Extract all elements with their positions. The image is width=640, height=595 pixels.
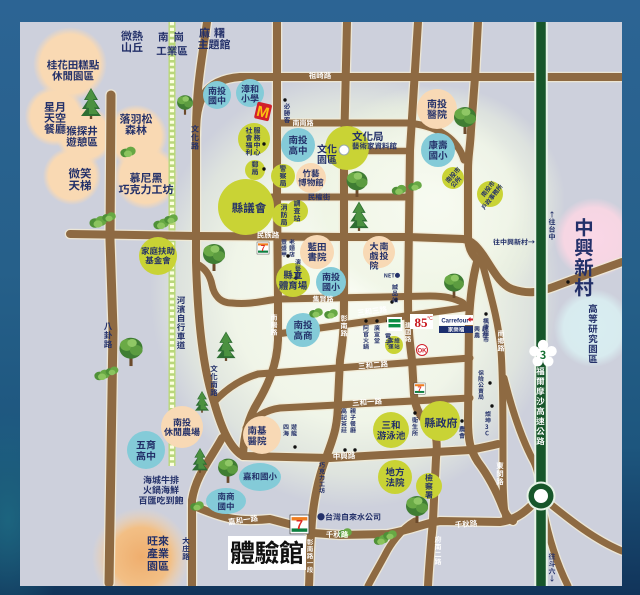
svg-text:OK: OK <box>418 349 428 355</box>
svg-text:85: 85 <box>415 315 429 330</box>
svg-text:°C: °C <box>427 316 433 322</box>
svg-text:Carrefour: Carrefour <box>441 319 469 325</box>
svg-text:7: 7 <box>296 518 303 532</box>
svg-text:7: 7 <box>418 384 422 393</box>
svg-text:7: 7 <box>261 244 266 253</box>
